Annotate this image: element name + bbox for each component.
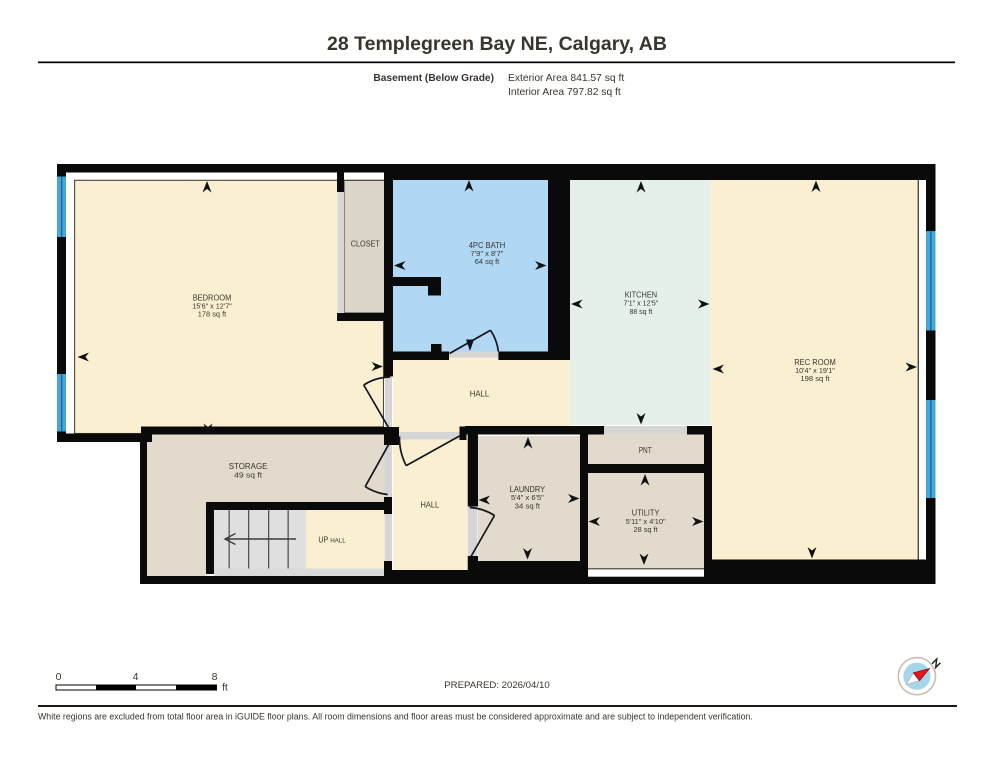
- svg-text:8: 8: [212, 671, 218, 683]
- svg-text:28 Templegreen Bay NE, Calgary: 28 Templegreen Bay NE, Calgary, AB: [327, 33, 667, 55]
- svg-text:178 sq ft: 178 sq ft: [198, 309, 227, 318]
- svg-text:HALL: HALL: [330, 537, 346, 544]
- svg-text:49 sq ft: 49 sq ft: [234, 471, 263, 480]
- svg-text:PNT: PNT: [639, 445, 653, 455]
- svg-text:HALL: HALL: [470, 388, 490, 398]
- svg-text:ft: ft: [222, 682, 228, 694]
- svg-text:White regions are excluded fro: White regions are excluded from total fl…: [38, 712, 753, 722]
- svg-text:Exterior Area 841.57 sq ft: Exterior Area 841.57 sq ft: [508, 73, 624, 84]
- svg-text:CLOSET: CLOSET: [351, 238, 381, 248]
- svg-text:34 sq ft: 34 sq ft: [515, 501, 541, 510]
- svg-text:88 sq ft: 88 sq ft: [629, 307, 653, 316]
- svg-text:STORAGE: STORAGE: [229, 461, 268, 471]
- svg-text:Basement (Below Grade): Basement (Below Grade): [373, 73, 494, 84]
- svg-text:PREPARED: 2026/04/10: PREPARED: 2026/04/10: [444, 680, 549, 691]
- svg-text:HALL: HALL: [420, 500, 439, 510]
- svg-text:UP: UP: [318, 535, 328, 544]
- svg-text:198 sq ft: 198 sq ft: [800, 374, 830, 383]
- svg-text:0: 0: [56, 671, 62, 683]
- svg-text:64 sq ft: 64 sq ft: [475, 257, 500, 266]
- svg-text:4: 4: [133, 671, 139, 683]
- svg-text:Interior Area 797.82 sq ft: Interior Area 797.82 sq ft: [508, 87, 621, 98]
- svg-text:28 sq ft: 28 sq ft: [634, 525, 659, 534]
